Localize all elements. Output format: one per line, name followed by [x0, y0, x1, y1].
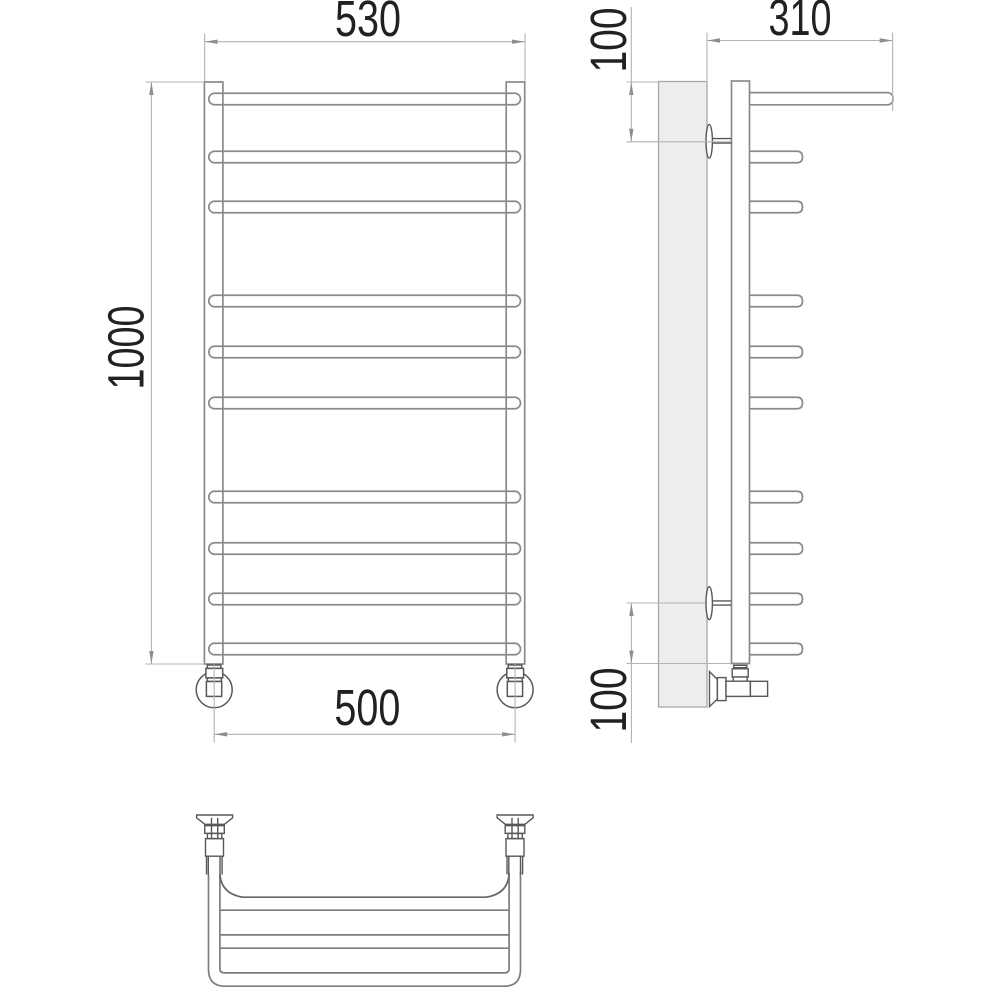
svg-text:1000: 1000: [98, 306, 155, 390]
svg-text:100: 100: [580, 8, 637, 73]
svg-text:310: 310: [769, 0, 832, 46]
svg-text:530: 530: [335, 0, 401, 47]
svg-text:500: 500: [334, 679, 400, 736]
svg-text:100: 100: [580, 668, 637, 733]
